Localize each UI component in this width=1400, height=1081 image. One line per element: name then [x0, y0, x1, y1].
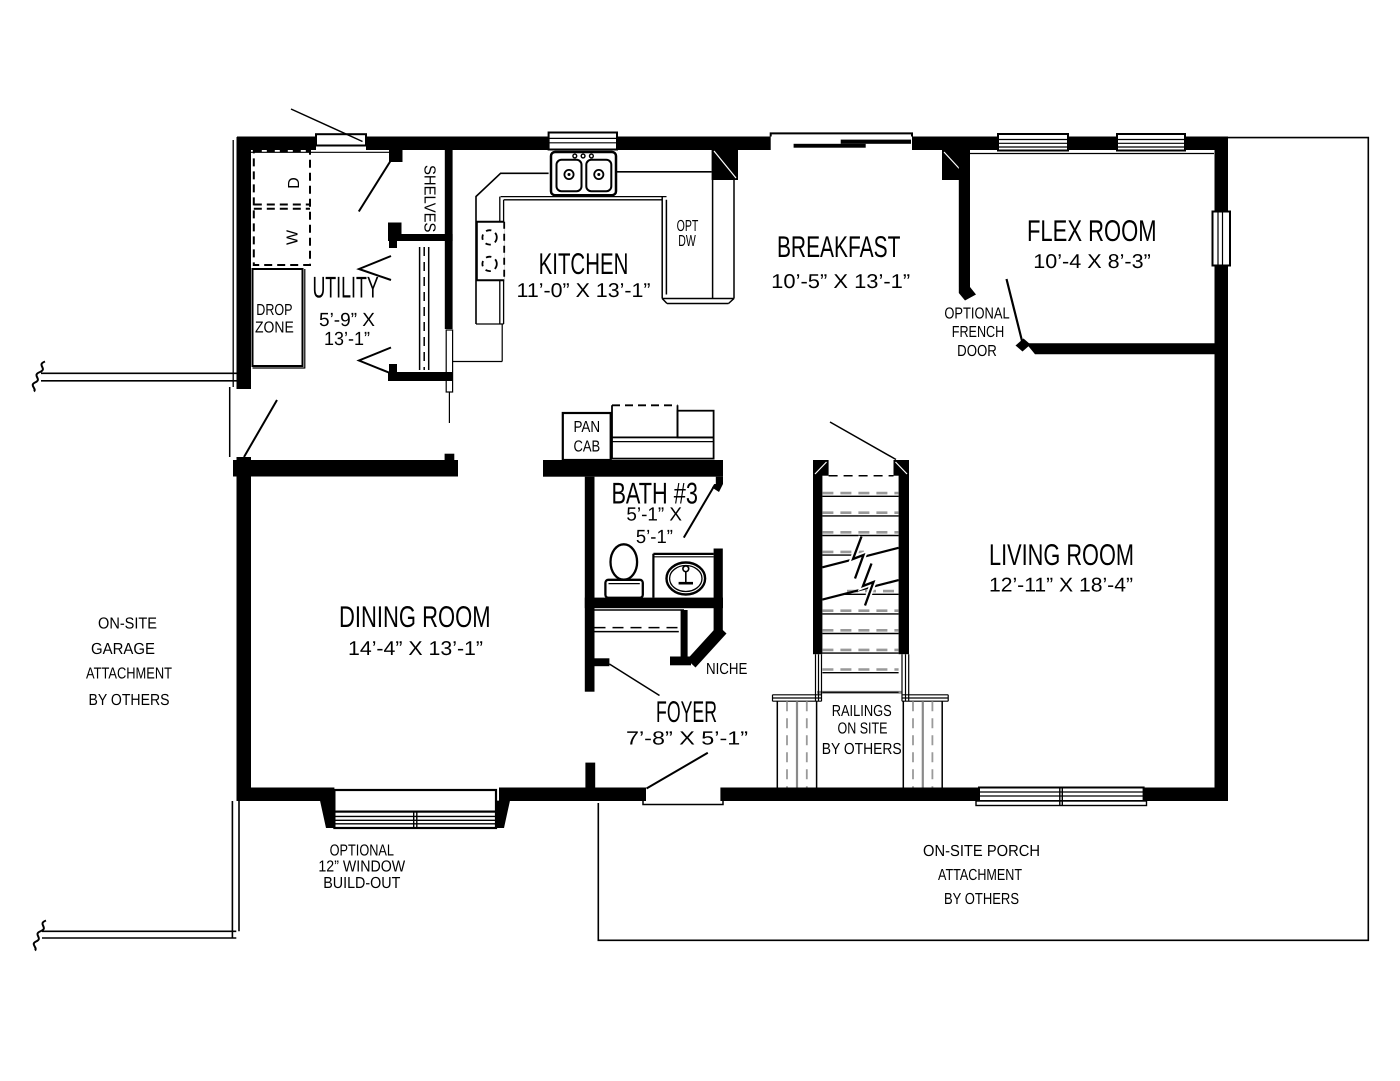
svg-text:12” WINDOW: 12” WINDOW: [318, 858, 406, 875]
svg-text:KITCHEN: KITCHEN: [539, 248, 629, 281]
svg-text:SHELVES: SHELVES: [420, 165, 437, 233]
svg-text:ON-SITE PORCH: ON-SITE PORCH: [923, 843, 1040, 860]
svg-text:CAB: CAB: [573, 439, 600, 456]
svg-text:DINING ROOM: DINING ROOM: [339, 601, 491, 634]
svg-text:10’-4 X 8’-3”: 10’-4 X 8’-3”: [1033, 251, 1151, 273]
svg-text:10’-5” X 13’-1”: 10’-5” X 13’-1”: [771, 271, 910, 293]
svg-text:PAN: PAN: [573, 419, 600, 436]
svg-text:OPTIONAL: OPTIONAL: [944, 306, 1009, 323]
svg-text:5’-1” X: 5’-1” X: [626, 504, 682, 525]
svg-text:ZONE: ZONE: [255, 320, 294, 337]
svg-text:RAILINGS: RAILINGS: [832, 703, 892, 720]
svg-text:FRENCH: FRENCH: [952, 324, 1005, 341]
svg-text:OPTIONAL: OPTIONAL: [330, 842, 394, 859]
svg-text:ATTACHMENT: ATTACHMENT: [86, 666, 172, 683]
svg-text:ATTACHMENT: ATTACHMENT: [938, 867, 1022, 884]
svg-text:D: D: [286, 177, 303, 189]
svg-text:11’-0” X 13’-1”: 11’-0” X 13’-1”: [517, 280, 651, 302]
svg-text:W: W: [285, 229, 302, 245]
svg-text:5’-9” X: 5’-9” X: [319, 310, 375, 331]
svg-text:5’-1”: 5’-1”: [636, 527, 673, 548]
svg-text:FLEX ROOM: FLEX ROOM: [1027, 215, 1157, 248]
svg-text:NICHE: NICHE: [706, 661, 747, 678]
svg-text:BY OTHERS: BY OTHERS: [822, 741, 902, 758]
svg-text:12’-11” X 18’-4”: 12’-11” X 18’-4”: [989, 575, 1133, 597]
svg-text:14’-4” X 13’-1”: 14’-4” X 13’-1”: [348, 638, 483, 660]
svg-text:7’-8” X 5’-1”: 7’-8” X 5’-1”: [626, 729, 748, 750]
svg-text:BREAKFAST: BREAKFAST: [777, 231, 901, 264]
svg-text:LIVING ROOM: LIVING ROOM: [989, 539, 1134, 572]
svg-text:DW: DW: [678, 233, 696, 250]
svg-text:FOYER: FOYER: [656, 696, 717, 729]
svg-text:BY OTHERS: BY OTHERS: [89, 692, 170, 709]
svg-text:BUILD-OUT: BUILD-OUT: [323, 875, 400, 892]
svg-text:ON-SITE: ON-SITE: [98, 616, 157, 633]
svg-text:GARAGE: GARAGE: [91, 641, 155, 658]
svg-text:UTILITY: UTILITY: [312, 272, 378, 305]
svg-text:BY OTHERS: BY OTHERS: [944, 891, 1019, 908]
svg-text:13’-1”: 13’-1”: [324, 329, 370, 350]
svg-text:ON SITE: ON SITE: [838, 720, 888, 737]
svg-text:DROP: DROP: [256, 302, 292, 319]
svg-text:DOOR: DOOR: [957, 343, 997, 360]
